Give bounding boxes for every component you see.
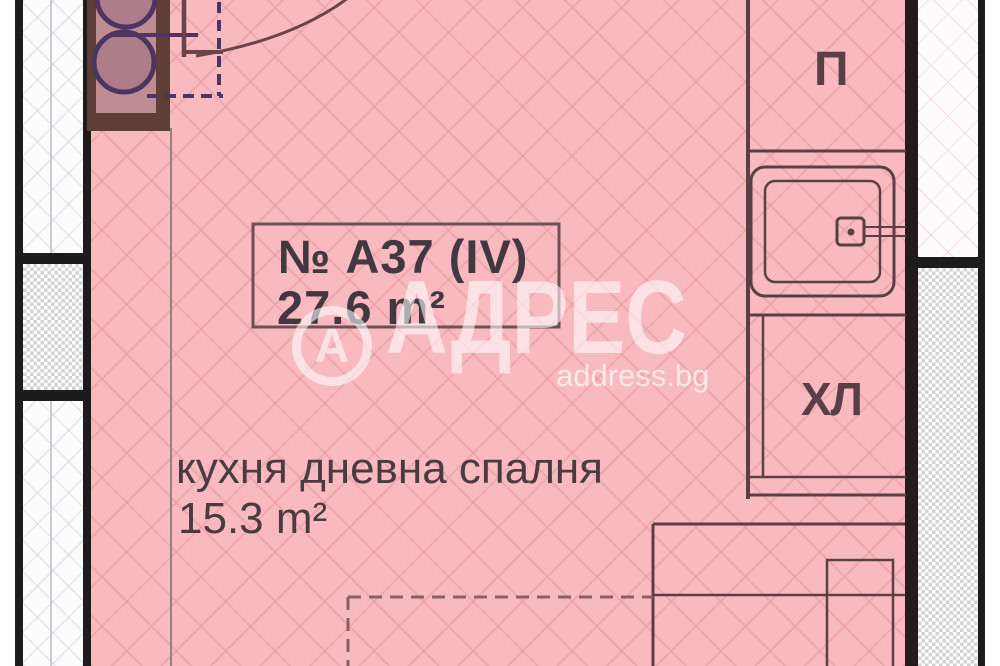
watermark-brand: АДРЕС [386,266,687,370]
floor-plan-canvas: № А37 (IV) 27.6 m² кухня дневна спалня 1… [0,0,1000,666]
dashed-furniture-outline [348,597,653,666]
fridge-label: ХЛ [801,372,862,426]
entry-door-arc-icon [182,0,348,57]
anteroom-label: П [814,42,849,97]
shower-tray-icon [751,167,906,296]
address-logo-icon: А [292,306,372,386]
address-logo-letter: А [315,319,350,374]
room-label: кухня дневна спалня [176,444,603,494]
bed-icon [653,524,905,666]
room-area: 15.3 m² [178,494,327,544]
stove-cabinet-icon [87,0,170,131]
watermark-domain: address.bg [556,358,709,394]
